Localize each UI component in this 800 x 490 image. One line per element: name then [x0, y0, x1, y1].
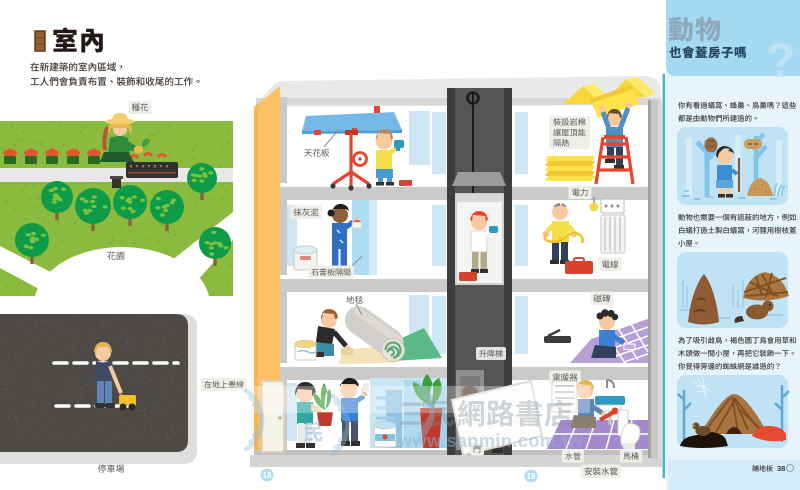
svg-text:www.sanmin.com.tw: www.sanmin.com.tw — [397, 431, 583, 451]
svg-text:?: ? — [766, 35, 795, 88]
svg-text:38: 38 — [777, 464, 785, 473]
svg-text:18: 18 — [263, 471, 272, 480]
svg-text:19: 19 — [527, 472, 536, 481]
